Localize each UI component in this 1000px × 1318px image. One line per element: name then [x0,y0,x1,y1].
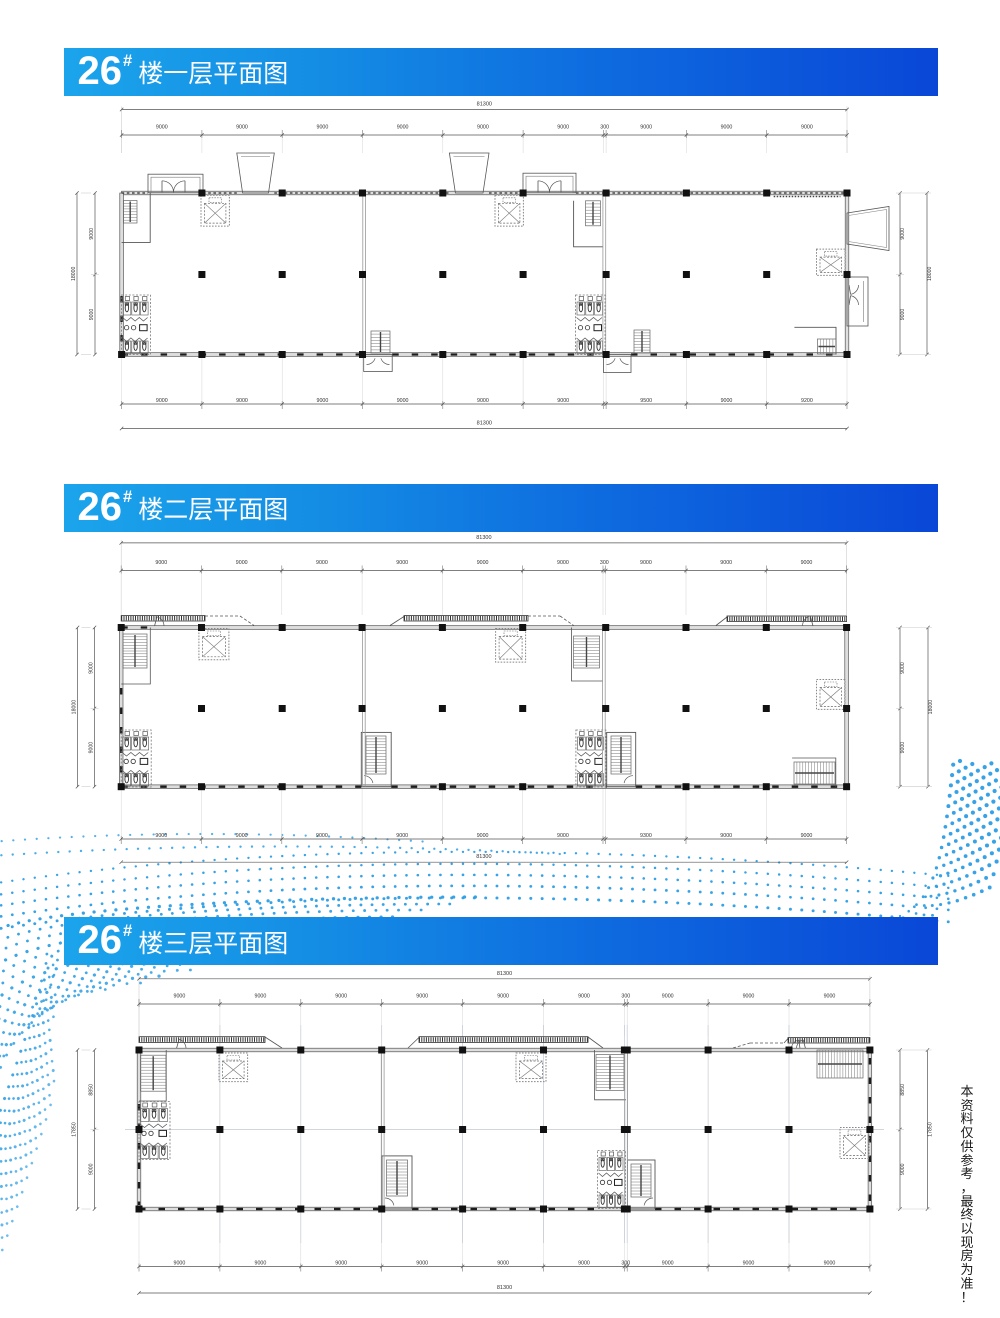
svg-text:9000: 9000 [477,560,489,566]
svg-text:9000: 9000 [316,560,328,566]
svg-text:17850: 17850 [72,1122,78,1137]
svg-text:9000: 9000 [557,560,569,566]
svg-text:9000: 9000 [743,1260,755,1266]
svg-text:9000: 9000 [824,1260,836,1266]
svg-text:9000: 9000 [578,994,590,1000]
svg-text:9000: 9000 [720,833,732,839]
svg-text:300: 300 [621,994,630,1000]
svg-text:9000: 9000 [335,1260,347,1266]
svg-text:9000: 9000 [317,398,329,404]
svg-text:81300: 81300 [497,1285,512,1291]
svg-text:81300: 81300 [477,421,492,427]
svg-text:9000: 9000 [397,398,409,404]
svg-text:300: 300 [621,1260,630,1266]
svg-text:18000: 18000 [72,700,78,715]
svg-text:9200: 9200 [801,398,813,404]
svg-text:9000: 9000 [416,1260,428,1266]
svg-text:9000: 9000 [317,125,329,131]
svg-text:9000: 9000 [662,994,674,1000]
svg-text:9000: 9000 [236,125,248,131]
svg-text:9000: 9000 [477,398,489,404]
svg-text:9000: 9000 [396,833,408,839]
svg-text:81300: 81300 [477,102,492,108]
svg-text:9000: 9000 [89,742,95,754]
svg-text:9000: 9000 [900,228,906,240]
svg-text:9000: 9000 [801,125,813,131]
svg-text:9000: 9000 [255,1260,267,1266]
svg-text:9000: 9000 [497,1260,509,1266]
svg-text:9000: 9000 [477,125,489,131]
svg-text:9000: 9000 [396,560,408,566]
svg-text:9000: 9000 [557,125,569,131]
svg-text:9000: 9000 [640,560,652,566]
svg-text:9000: 9000 [155,833,167,839]
svg-text:9000: 9000 [255,994,267,1000]
svg-text:18000: 18000 [928,700,934,715]
svg-text:9000: 9000 [335,994,347,1000]
svg-text:9000: 9000 [89,309,95,321]
svg-text:9000: 9000 [801,560,813,566]
svg-text:300: 300 [600,125,609,131]
svg-text:9000: 9000 [174,1260,186,1266]
svg-text:9000: 9000 [801,833,813,839]
svg-text:9000: 9000 [557,833,569,839]
svg-text:9300: 9300 [640,833,652,839]
svg-text:9000: 9000 [557,398,569,404]
svg-text:9000: 9000 [721,125,733,131]
svg-text:9000: 9000 [900,662,906,674]
svg-text:9000: 9000 [662,1260,674,1266]
svg-text:8850: 8850 [900,1084,906,1096]
svg-text:9000: 9000 [155,560,167,566]
svg-text:8850: 8850 [89,1084,95,1096]
svg-text:9000: 9000 [416,994,428,1000]
svg-text:9000: 9000 [156,398,168,404]
svg-text:9000: 9000 [824,994,836,1000]
svg-text:9000: 9000 [174,994,186,1000]
svg-text:18000: 18000 [927,266,933,281]
svg-text:9000: 9000 [89,228,95,240]
svg-text:9000: 9000 [236,398,248,404]
svg-text:9000: 9000 [156,125,168,131]
svg-text:300: 300 [600,560,609,566]
svg-text:81300: 81300 [476,854,491,860]
svg-text:9000: 9000 [721,398,733,404]
svg-text:9000: 9000 [743,994,755,1000]
svg-text:9000: 9000 [900,742,906,754]
svg-text:9000: 9000 [720,560,732,566]
svg-text:18000: 18000 [71,266,77,281]
svg-text:81300: 81300 [476,535,491,541]
svg-text:9000: 9000 [640,125,652,131]
svg-text:9000: 9000 [236,833,248,839]
svg-text:9000: 9000 [497,994,509,1000]
svg-text:9000: 9000 [900,1163,906,1175]
svg-text:9000: 9000 [900,309,906,321]
svg-text:9500: 9500 [640,398,652,404]
svg-text:9000: 9000 [89,662,95,674]
svg-text:9000: 9000 [316,833,328,839]
svg-text:81300: 81300 [497,971,512,977]
svg-text:9000: 9000 [89,1163,95,1175]
svg-text:9000: 9000 [578,1260,590,1266]
svg-text:17850: 17850 [928,1122,934,1137]
svg-text:9000: 9000 [477,833,489,839]
svg-text:9000: 9000 [397,125,409,131]
svg-text:9000: 9000 [236,560,248,566]
